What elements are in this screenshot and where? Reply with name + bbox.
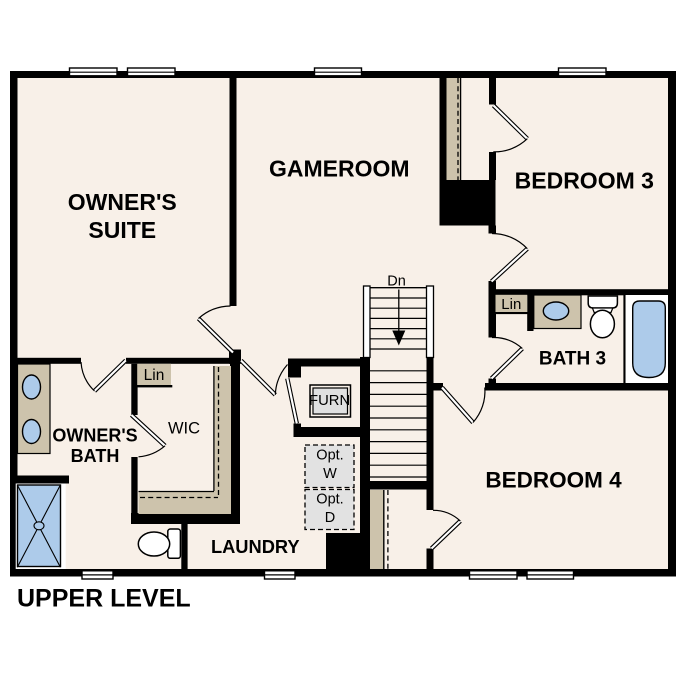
svg-text:UPPER LEVEL: UPPER LEVEL [17,585,191,613]
svg-text:Dn: Dn [387,274,406,290]
svg-text:Opt.: Opt. [316,492,343,508]
svg-text:BATH 3: BATH 3 [539,348,606,369]
svg-text:Lin: Lin [501,296,521,313]
svg-text:W: W [323,466,337,482]
svg-text:OWNER'S: OWNER'S [68,189,177,215]
svg-text:BEDROOM 3: BEDROOM 3 [515,167,654,193]
svg-text:Opt.: Opt. [316,448,343,464]
svg-text:GAMEROOM: GAMEROOM [269,156,410,182]
svg-text:OWNER'S: OWNER'S [52,425,137,445]
svg-text:SUITE: SUITE [88,217,156,243]
svg-text:D: D [325,510,335,526]
svg-text:LAUNDRY: LAUNDRY [211,536,300,557]
svg-text:WIC: WIC [168,420,200,438]
svg-text:FURN: FURN [309,393,350,409]
svg-text:Lin: Lin [144,367,165,384]
svg-text:BEDROOM 4: BEDROOM 4 [485,468,622,493]
svg-text:BATH: BATH [71,446,120,466]
